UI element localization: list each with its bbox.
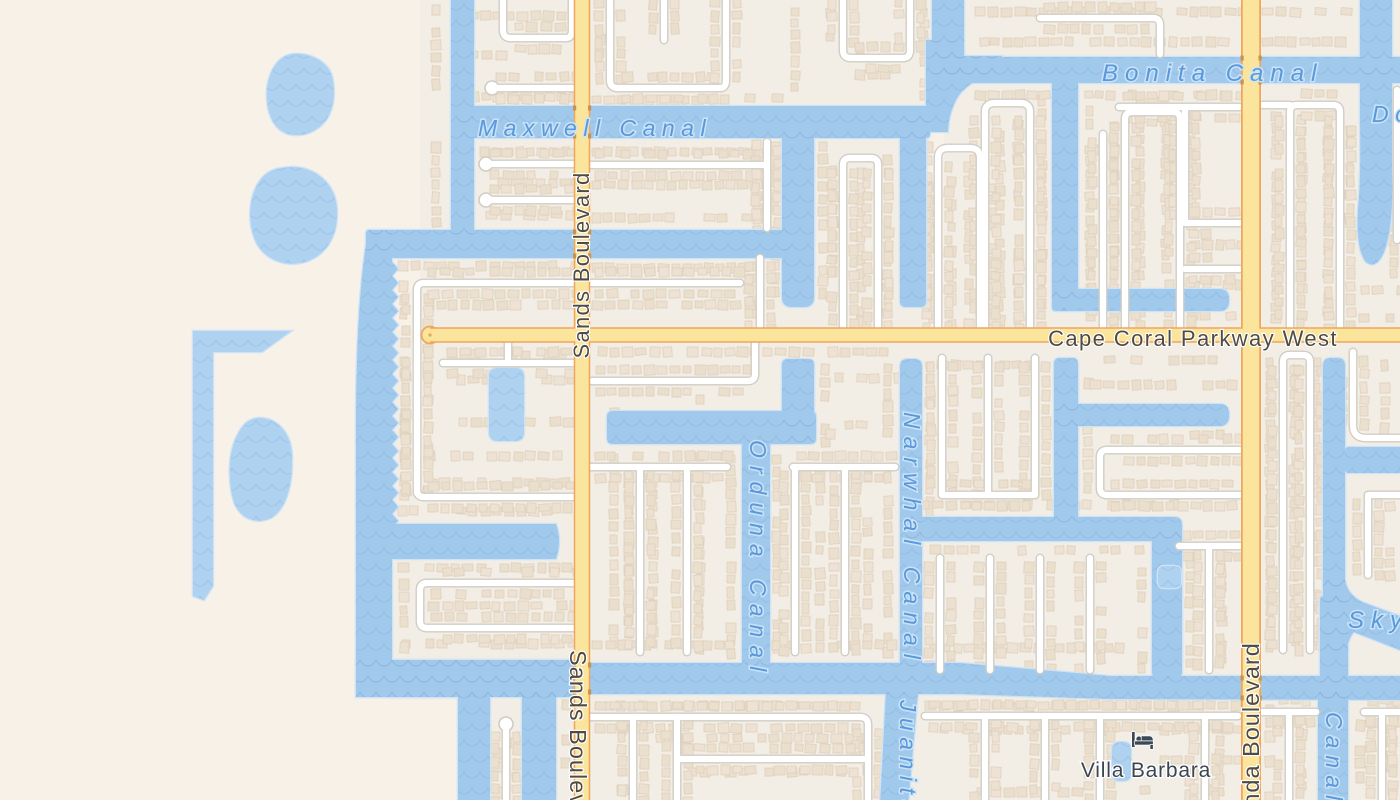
svg-text:Juanita Canal: Juanita Canal <box>895 699 921 800</box>
svg-text:Sands Boulevard: Sands Boulevard <box>565 650 591 800</box>
svg-text:Cape Coral Parkway West: Cape Coral Parkway West <box>1048 326 1338 351</box>
svg-text:Maxwell Canal: Maxwell Canal <box>478 115 712 141</box>
svg-text:Villa Barbara: Villa Barbara <box>1081 759 1211 782</box>
svg-text:Narwhal Canal: Narwhal Canal <box>899 412 925 667</box>
svg-text:Canal: Canal <box>1321 712 1347 800</box>
svg-text:Bonita Canal: Bonita Canal <box>1102 60 1323 87</box>
svg-text:Agualinda Boulevard: Agualinda Boulevard <box>1238 642 1264 800</box>
svg-text:Sands Boulevard: Sands Boulevard <box>569 171 594 358</box>
svg-text:Skyline: Skyline <box>1348 607 1400 634</box>
svg-text:Dol: Dol <box>1372 101 1400 127</box>
svg-text:Orduna Canal: Orduna Canal <box>745 440 771 679</box>
